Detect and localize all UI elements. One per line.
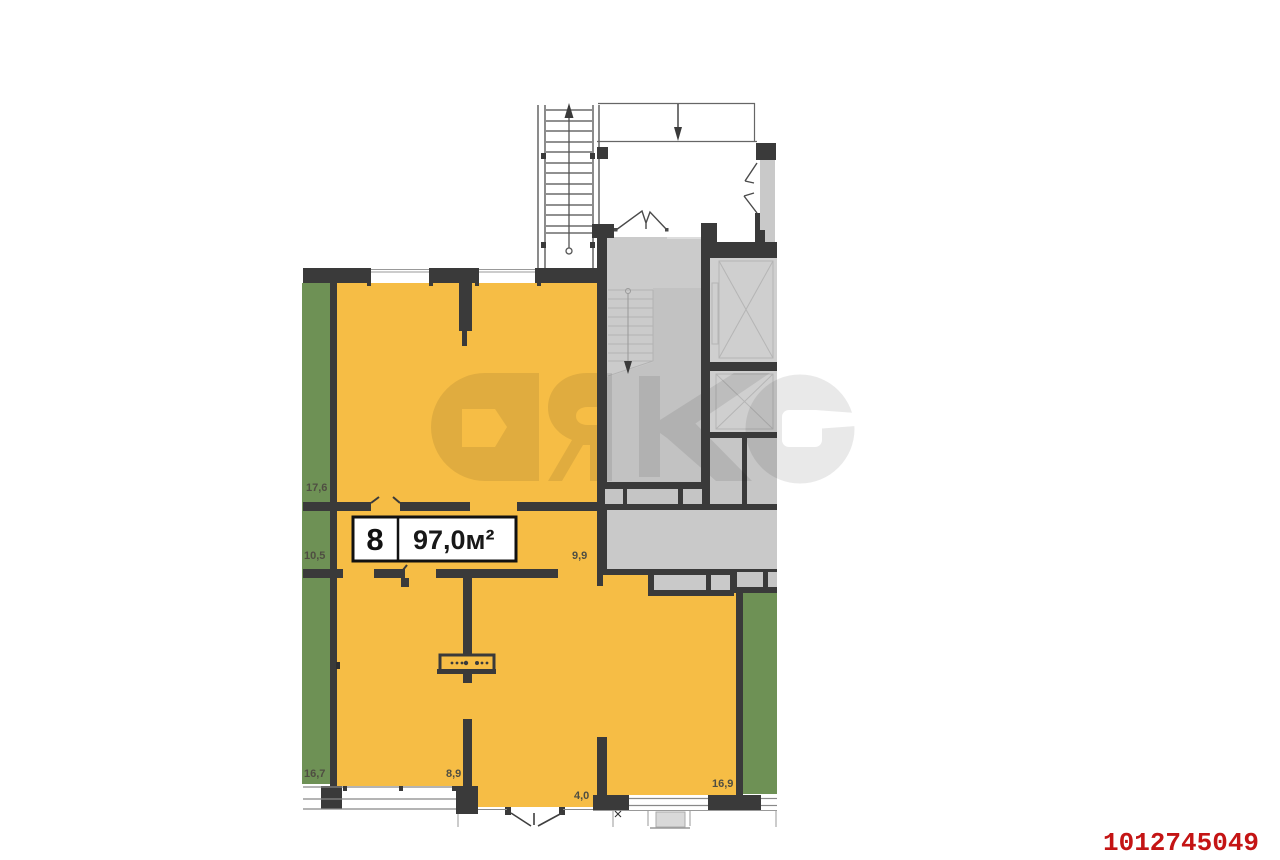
svg-text:9,9: 9,9 <box>572 550 587 562</box>
svg-text:4,0: 4,0 <box>574 790 589 802</box>
svg-text:1012745049: 1012745049 <box>1103 828 1259 858</box>
svg-text:8,9: 8,9 <box>446 768 461 780</box>
svg-text:10,5: 10,5 <box>304 550 325 562</box>
svg-text:16,7: 16,7 <box>304 768 325 780</box>
svg-text:97,0м²: 97,0м² <box>413 525 495 555</box>
svg-text:16,9: 16,9 <box>712 778 733 790</box>
svg-text:8: 8 <box>366 522 383 557</box>
svg-text:17,6: 17,6 <box>306 482 327 494</box>
